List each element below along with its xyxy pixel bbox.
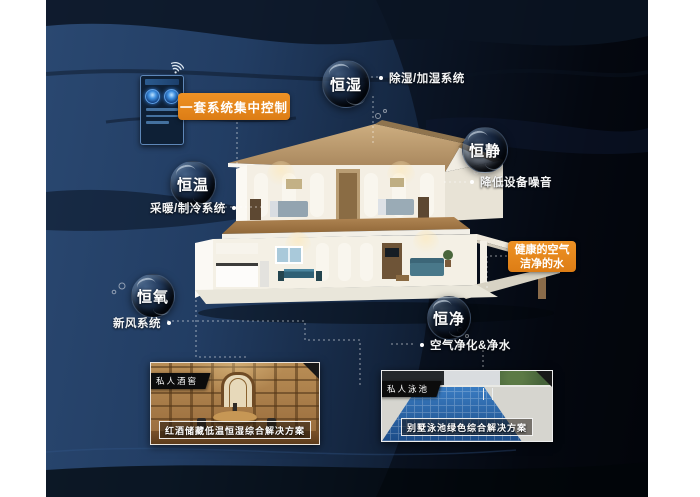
note-air-water-purification: 空气净化&净水 xyxy=(420,337,511,353)
wine-arch-cabinet xyxy=(221,372,255,407)
panel-header xyxy=(145,79,179,85)
note-heating-cooling-system: 采暖/制冷系统 xyxy=(150,200,236,216)
bullet-dot-icon xyxy=(420,343,424,347)
note-fresh-air-system: 新风系统 xyxy=(113,315,171,331)
bubble-label: 恒氧 xyxy=(137,286,169,307)
central-control-callout: 一套系统集中控制 xyxy=(178,93,290,120)
bubble-label: 恒湿 xyxy=(330,74,362,95)
pool-card: 私人泳池 别墅泳池绿色综合解决方案 xyxy=(381,370,553,442)
air-water-line1: 健康的空气 xyxy=(515,243,570,257)
bubble-label: 恒净 xyxy=(433,308,465,329)
card-tag-text: 私人泳池 xyxy=(387,383,429,395)
smart-home-infographic: 一套系统集中控制 健康的空气 洁净的水 恒湿 恒静 恒温 恒氧 恒净 除湿/加湿… xyxy=(0,0,700,497)
bullet-dot-icon xyxy=(232,206,236,210)
bubble-constant-humidity: 恒湿 xyxy=(322,60,370,108)
card-caption: 别墅泳池绿色综合解决方案 xyxy=(401,418,533,436)
bullet-dot-icon xyxy=(379,76,383,80)
air-water-callout: 健康的空气 洁净的水 xyxy=(508,241,576,272)
wine-cellar-card: 私人酒窖 红酒储藏低温恒湿综合解决方案 xyxy=(150,362,320,445)
bubble-constant-quiet: 恒静 xyxy=(462,127,508,173)
bubble-constant-oxygen: 恒氧 xyxy=(131,274,175,318)
bubble-label: 恒温 xyxy=(177,174,209,195)
bullet-dot-icon xyxy=(470,180,474,184)
wifi-icon xyxy=(166,60,184,76)
air-water-line2: 洁净的水 xyxy=(520,257,564,271)
card-tag: 私人酒窖 xyxy=(150,373,211,389)
corner-ribbon-icon xyxy=(303,363,319,379)
note-text: 降低设备噪音 xyxy=(480,174,552,190)
panel-row xyxy=(146,115,178,118)
note-text: 采暖/制冷系统 xyxy=(150,200,226,216)
bullet-dot-icon xyxy=(167,321,171,325)
panel-knob-icon xyxy=(164,89,179,104)
note-dehumidify-humidify-system: 除湿/加湿系统 xyxy=(379,70,465,86)
note-text: 除湿/加湿系统 xyxy=(389,70,465,86)
card-tag-text: 私人酒窖 xyxy=(156,375,198,387)
bubble-constant-purity: 恒净 xyxy=(427,296,471,340)
corner-ribbon-icon xyxy=(536,371,552,387)
panel-knobs xyxy=(143,89,181,104)
note-text: 新风系统 xyxy=(113,315,161,331)
pool-ladder-icon xyxy=(483,388,493,400)
panel-row xyxy=(146,108,178,111)
note-text: 空气净化&净水 xyxy=(430,337,511,353)
bubble-label: 恒静 xyxy=(469,140,501,161)
card-tag: 私人泳池 xyxy=(381,381,442,397)
panel-knob-icon xyxy=(145,89,160,104)
panel-row xyxy=(146,121,169,124)
infographic-stage: 一套系统集中控制 健康的空气 洁净的水 恒湿 恒静 恒温 恒氧 恒净 除湿/加湿… xyxy=(46,0,648,497)
card-caption: 红酒储藏低温恒湿综合解决方案 xyxy=(159,421,311,439)
note-reduce-equipment-noise: 降低设备噪音 xyxy=(470,174,552,190)
